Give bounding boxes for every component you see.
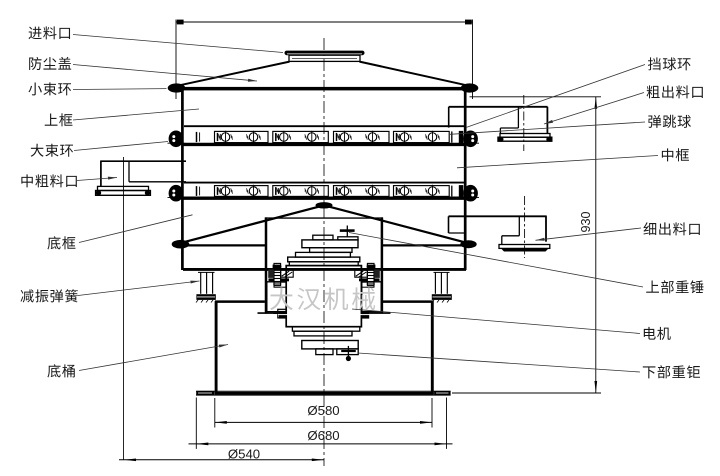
svg-text:Ø680: Ø680 xyxy=(307,428,339,443)
svg-text:930: 930 xyxy=(579,211,593,232)
svg-text:Ø580: Ø580 xyxy=(307,403,339,418)
